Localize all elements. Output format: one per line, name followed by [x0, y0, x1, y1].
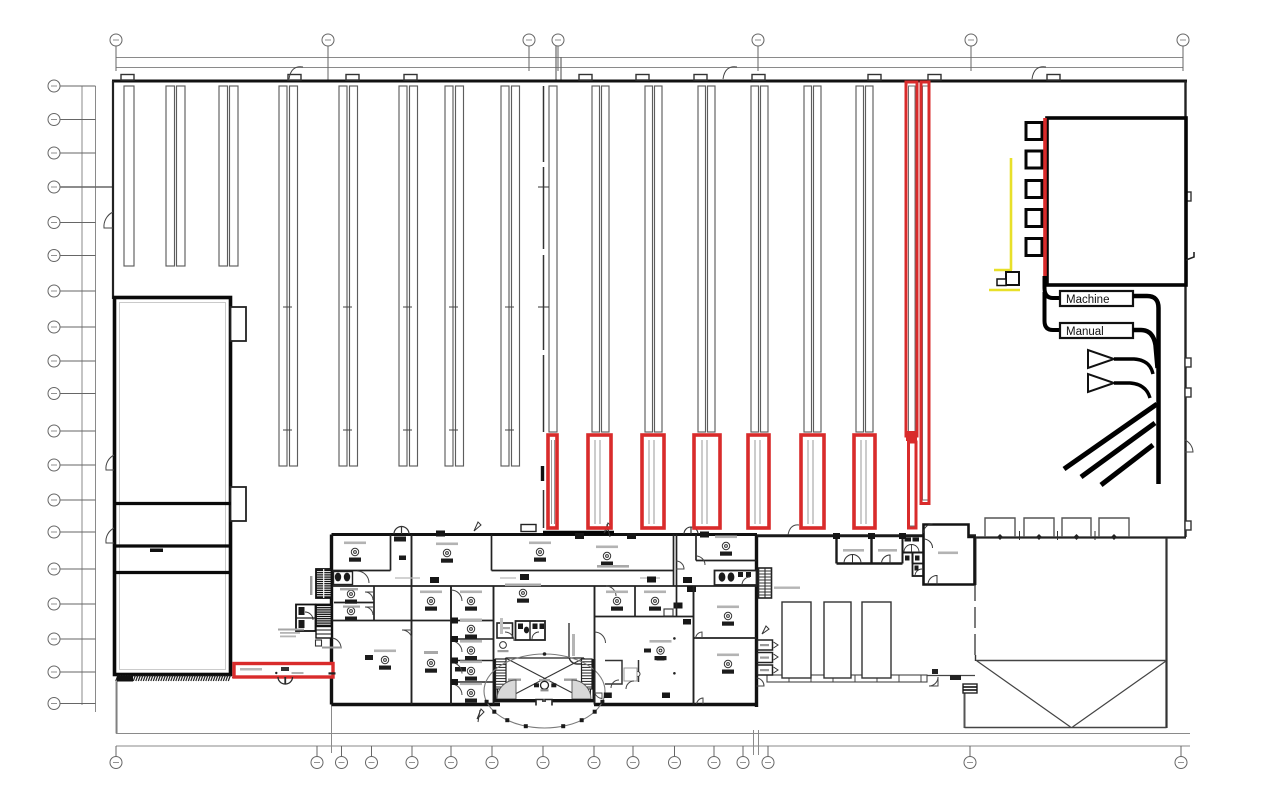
svg-text:Manual: Manual: [1066, 326, 1104, 338]
svg-text:Machine: Machine: [1066, 294, 1109, 306]
